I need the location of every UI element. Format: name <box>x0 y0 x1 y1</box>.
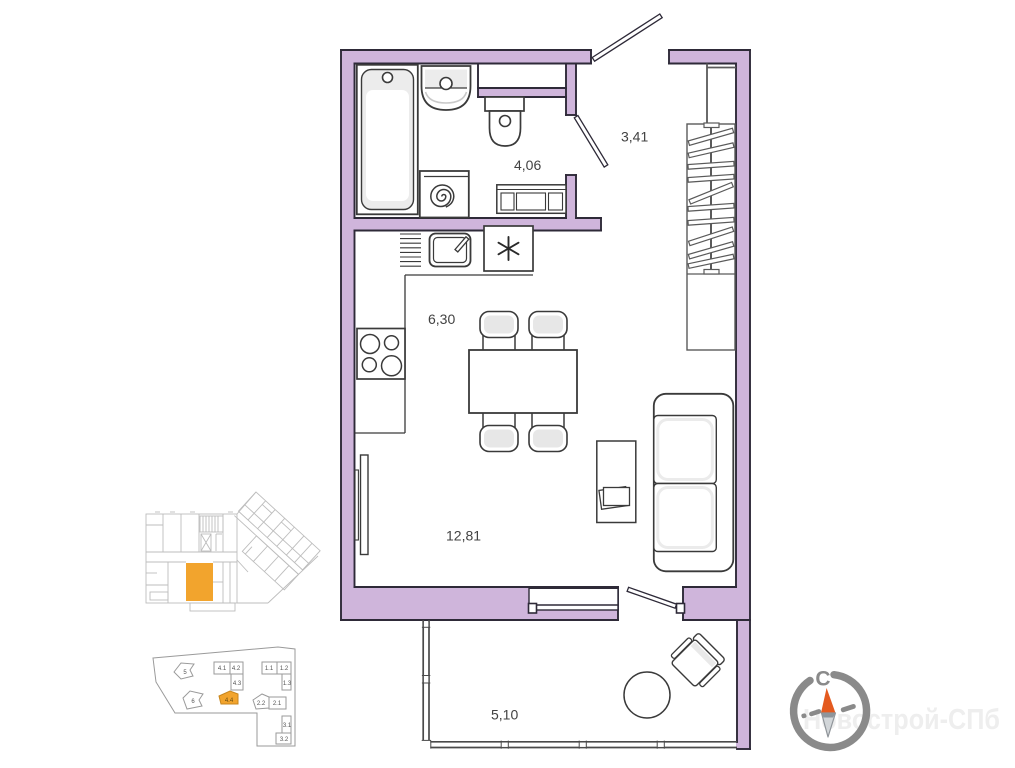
svg-text:6,30: 6,30 <box>428 311 455 327</box>
svg-text:12,81: 12,81 <box>446 528 481 544</box>
svg-text:1.3: 1.3 <box>283 681 292 687</box>
svg-text:4.3: 4.3 <box>233 681 242 687</box>
svg-text:1.1: 1.1 <box>265 666 274 672</box>
svg-text:1.2: 1.2 <box>280 666 289 672</box>
svg-text:2.1: 2.1 <box>273 701 282 707</box>
svg-text:3.2: 3.2 <box>280 737 289 743</box>
svg-text:4.4: 4.4 <box>225 698 234 704</box>
svg-text:5,10: 5,10 <box>491 707 518 723</box>
svg-text:4.1: 4.1 <box>218 666 227 672</box>
svg-text:4.2: 4.2 <box>232 666 241 672</box>
svg-text:3,41: 3,41 <box>621 129 648 145</box>
svg-text:4,06: 4,06 <box>514 157 541 173</box>
svg-text:2.2: 2.2 <box>257 701 266 707</box>
svg-text:С: С <box>815 668 830 691</box>
svg-text:3.1: 3.1 <box>283 723 292 729</box>
